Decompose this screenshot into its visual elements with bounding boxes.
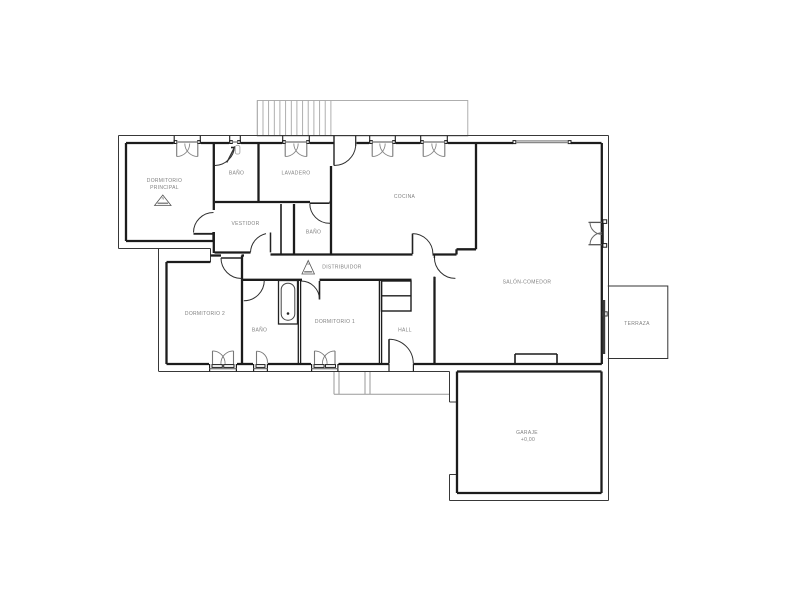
- svg-text:DISTRIBUIDOR: DISTRIBUIDOR: [322, 265, 362, 271]
- svg-text:COCINA: COCINA: [394, 194, 416, 200]
- svg-text:HALL: HALL: [398, 328, 412, 334]
- svg-text:DORMITORIO: DORMITORIO: [147, 178, 182, 184]
- svg-text:+0,00: +0,00: [521, 437, 535, 443]
- svg-text:BAÑO: BAÑO: [229, 170, 244, 177]
- svg-text:SALÓN-COMEDOR: SALÓN-COMEDOR: [503, 279, 552, 286]
- svg-text:VESTIDOR: VESTIDOR: [232, 221, 260, 227]
- svg-text:GARAJE: GARAJE: [516, 430, 538, 436]
- svg-text:BAÑO: BAÑO: [306, 229, 321, 236]
- svg-text:BAÑO: BAÑO: [252, 327, 267, 334]
- svg-text:LAVADERO: LAVADERO: [282, 171, 311, 177]
- svg-text:DORMITORIO 2: DORMITORIO 2: [185, 311, 225, 317]
- svg-text:TERRAZA: TERRAZA: [624, 321, 650, 327]
- svg-text:PRINCIPAL: PRINCIPAL: [150, 185, 179, 191]
- svg-text:DORMITORIO 1: DORMITORIO 1: [315, 319, 355, 325]
